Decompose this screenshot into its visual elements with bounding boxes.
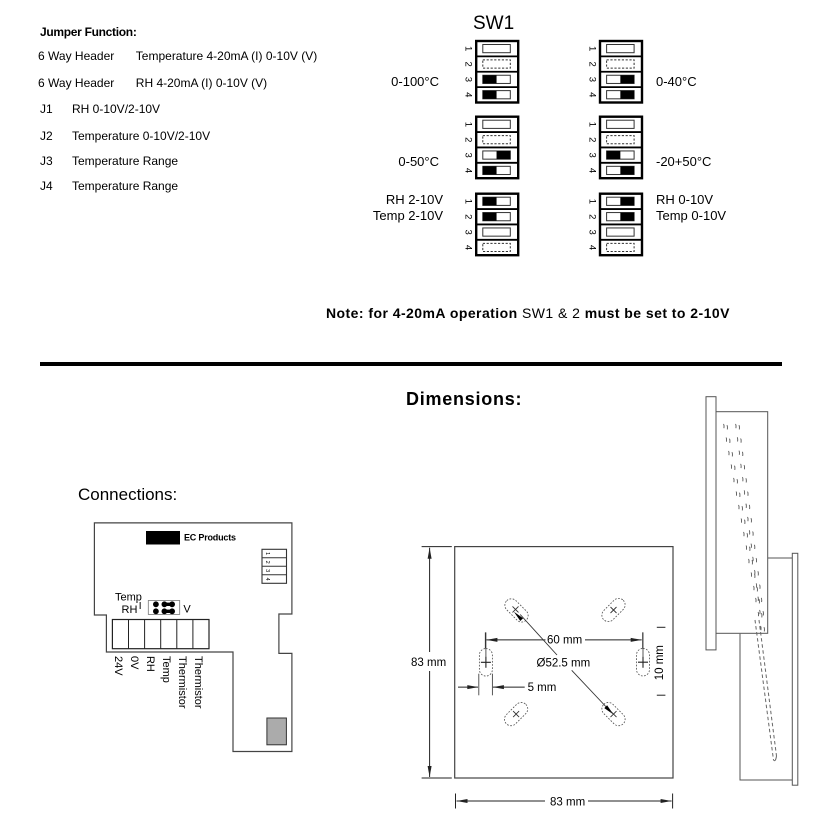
svg-text:5 mm: 5 mm	[528, 682, 557, 694]
svg-text:2: 2	[463, 137, 474, 142]
svg-text:2: 2	[463, 214, 474, 219]
svg-text:1: 1	[463, 199, 474, 204]
svg-text:3: 3	[264, 569, 270, 572]
svg-text:3: 3	[463, 77, 474, 82]
svg-text:RH: RH	[144, 656, 156, 672]
svg-text:2: 2	[586, 214, 597, 219]
svg-text:1: 1	[586, 46, 597, 51]
svg-text:1: 1	[264, 552, 270, 555]
svg-text:1: 1	[463, 122, 474, 127]
svg-text:1: 1	[586, 122, 597, 127]
svg-text:3: 3	[463, 152, 474, 157]
svg-text:4: 4	[586, 92, 597, 97]
svg-text:I: I	[139, 601, 142, 612]
svg-text:V: V	[183, 603, 191, 615]
svg-text:24V: 24V	[112, 656, 124, 676]
svg-text:1: 1	[586, 199, 597, 204]
svg-text:Temp: Temp	[160, 656, 172, 683]
svg-text:83 mm: 83 mm	[411, 657, 446, 669]
svg-text:3: 3	[586, 229, 597, 234]
svg-text:0V: 0V	[128, 656, 140, 670]
svg-text:Thermistor: Thermistor	[192, 656, 204, 709]
svg-text:Ø52.5 mm: Ø52.5 mm	[537, 657, 591, 669]
svg-text:Thermistor: Thermistor	[176, 656, 188, 709]
svg-text:3: 3	[586, 77, 597, 82]
svg-text:2: 2	[586, 61, 597, 66]
svg-text:2: 2	[264, 561, 270, 564]
svg-text:4: 4	[463, 92, 474, 97]
svg-text:3: 3	[463, 229, 474, 234]
svg-text:4: 4	[264, 578, 270, 581]
svg-text:RH: RH	[122, 604, 138, 616]
svg-text:EC Products: EC Products	[184, 533, 236, 543]
svg-text:60 mm: 60 mm	[547, 634, 582, 646]
svg-text:4: 4	[463, 245, 474, 250]
svg-text:4: 4	[463, 168, 474, 173]
svg-text:10 mm: 10 mm	[654, 645, 666, 680]
svg-text:4: 4	[586, 168, 597, 173]
svg-text:2: 2	[586, 137, 597, 142]
svg-text:2: 2	[463, 61, 474, 66]
svg-text:4: 4	[586, 245, 597, 250]
svg-text:3: 3	[586, 152, 597, 157]
svg-text:1: 1	[463, 46, 474, 51]
svg-text:83 mm: 83 mm	[550, 796, 585, 808]
